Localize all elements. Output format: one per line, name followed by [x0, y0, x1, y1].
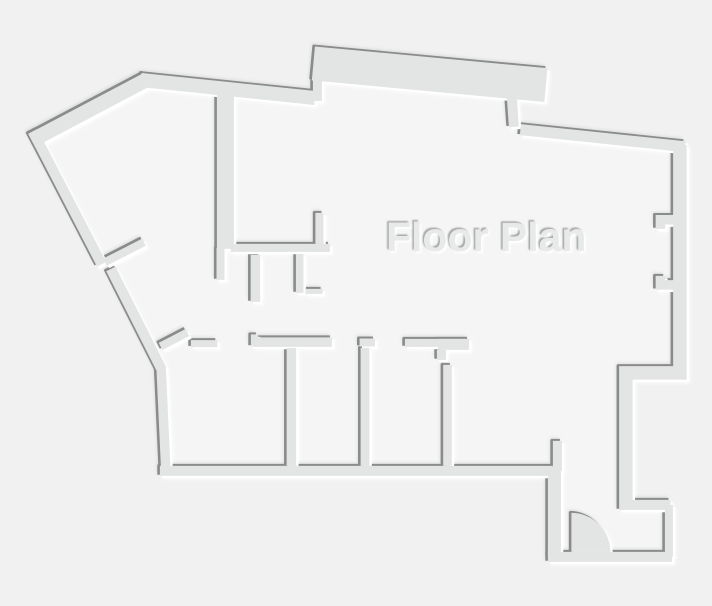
- svg-text:Floor Plan: Floor Plan: [386, 214, 586, 260]
